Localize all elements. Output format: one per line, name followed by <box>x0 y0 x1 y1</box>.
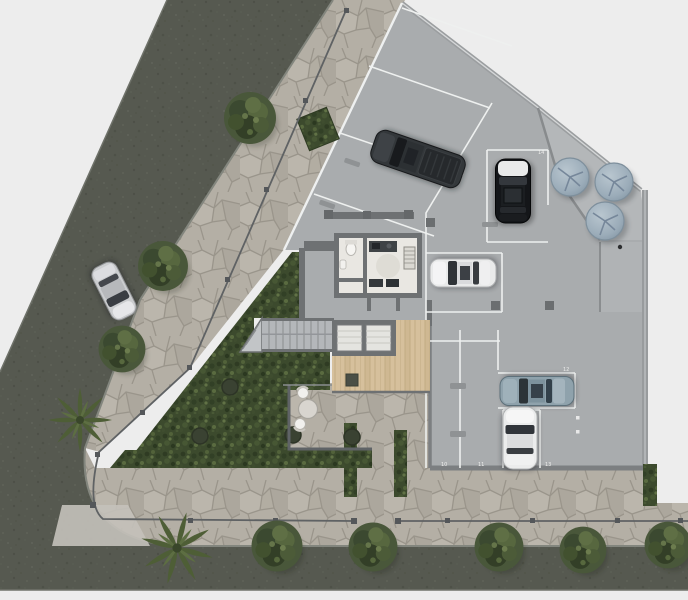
service-corridor <box>600 242 643 312</box>
water-tank <box>551 158 589 196</box>
sink <box>340 260 346 269</box>
parking-space-label: 10 <box>441 462 447 468</box>
street-tree <box>252 521 303 572</box>
round-rug <box>376 254 400 278</box>
black-car-white-hood <box>494 159 534 225</box>
street-tree <box>560 527 607 574</box>
elevators <box>332 320 396 356</box>
hedge-path-right <box>394 430 407 497</box>
counter <box>369 279 383 287</box>
site-plan: 10 11 12 13 14 <box>0 0 688 600</box>
water-tank <box>595 163 633 201</box>
street-tree <box>99 326 146 373</box>
white-sedan-center <box>430 257 498 289</box>
garden-south-strip <box>110 450 372 468</box>
deck-planter <box>346 374 358 386</box>
wall-west <box>299 248 305 320</box>
shelf <box>404 247 415 269</box>
site-plan-canvas: 10 11 12 13 14 <box>0 0 688 600</box>
street-tree <box>224 92 276 144</box>
water-tank <box>586 202 624 240</box>
street-tree <box>138 241 188 291</box>
steel-blue-sedan <box>500 374 576 407</box>
street-tree <box>475 523 524 572</box>
counter <box>386 279 399 287</box>
parking-space-label: 13 <box>545 462 551 468</box>
parking-space-label: 11 <box>478 462 484 468</box>
patio-chair <box>295 419 306 430</box>
parking-space-label: 12 <box>563 367 569 373</box>
white-car-south <box>501 407 539 471</box>
palm-tree <box>48 388 112 452</box>
parking-space-label: 14 <box>538 150 544 156</box>
patio-table <box>299 400 318 419</box>
street-tree <box>349 523 398 572</box>
hedge-east <box>643 464 657 506</box>
